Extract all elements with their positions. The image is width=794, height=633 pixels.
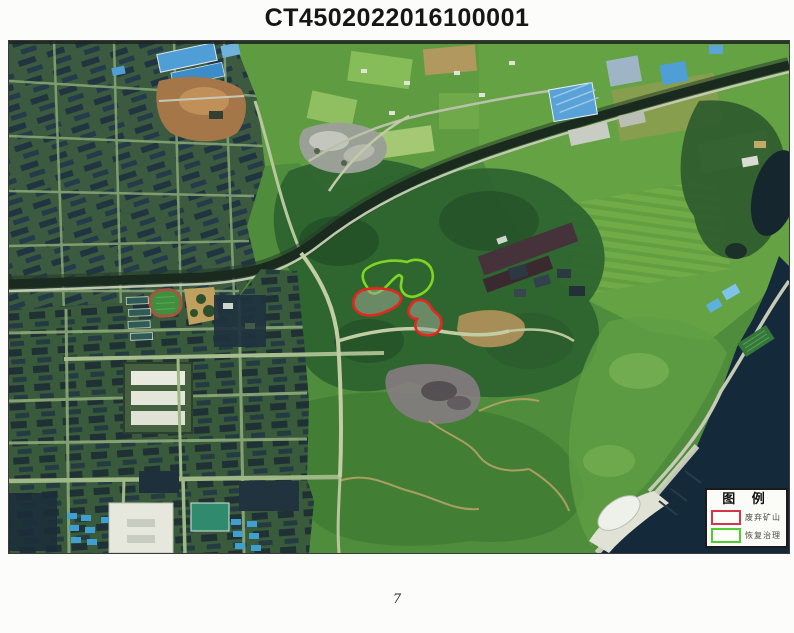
satellite-map	[9, 41, 789, 553]
satellite-photo	[8, 40, 790, 554]
abandoned-mine-label: 废弃矿山	[745, 512, 781, 523]
scan-edge	[9, 41, 789, 44]
restoration-label: 恢复治理	[745, 530, 781, 541]
page-number: 7	[0, 592, 794, 607]
legend: 图 例 废弃矿山 恢复治理	[705, 488, 788, 548]
legend-item-abandoned-mine: 废弃矿山	[711, 510, 782, 525]
legend-item-restoration: 恢复治理	[711, 528, 782, 543]
abandoned-mine-swatch	[711, 510, 741, 525]
restoration-swatch	[711, 528, 741, 543]
bare-earth-northwest	[156, 77, 246, 141]
legend-title: 图 例	[711, 493, 782, 507]
page-title: CT4502022016100001	[0, 4, 794, 33]
